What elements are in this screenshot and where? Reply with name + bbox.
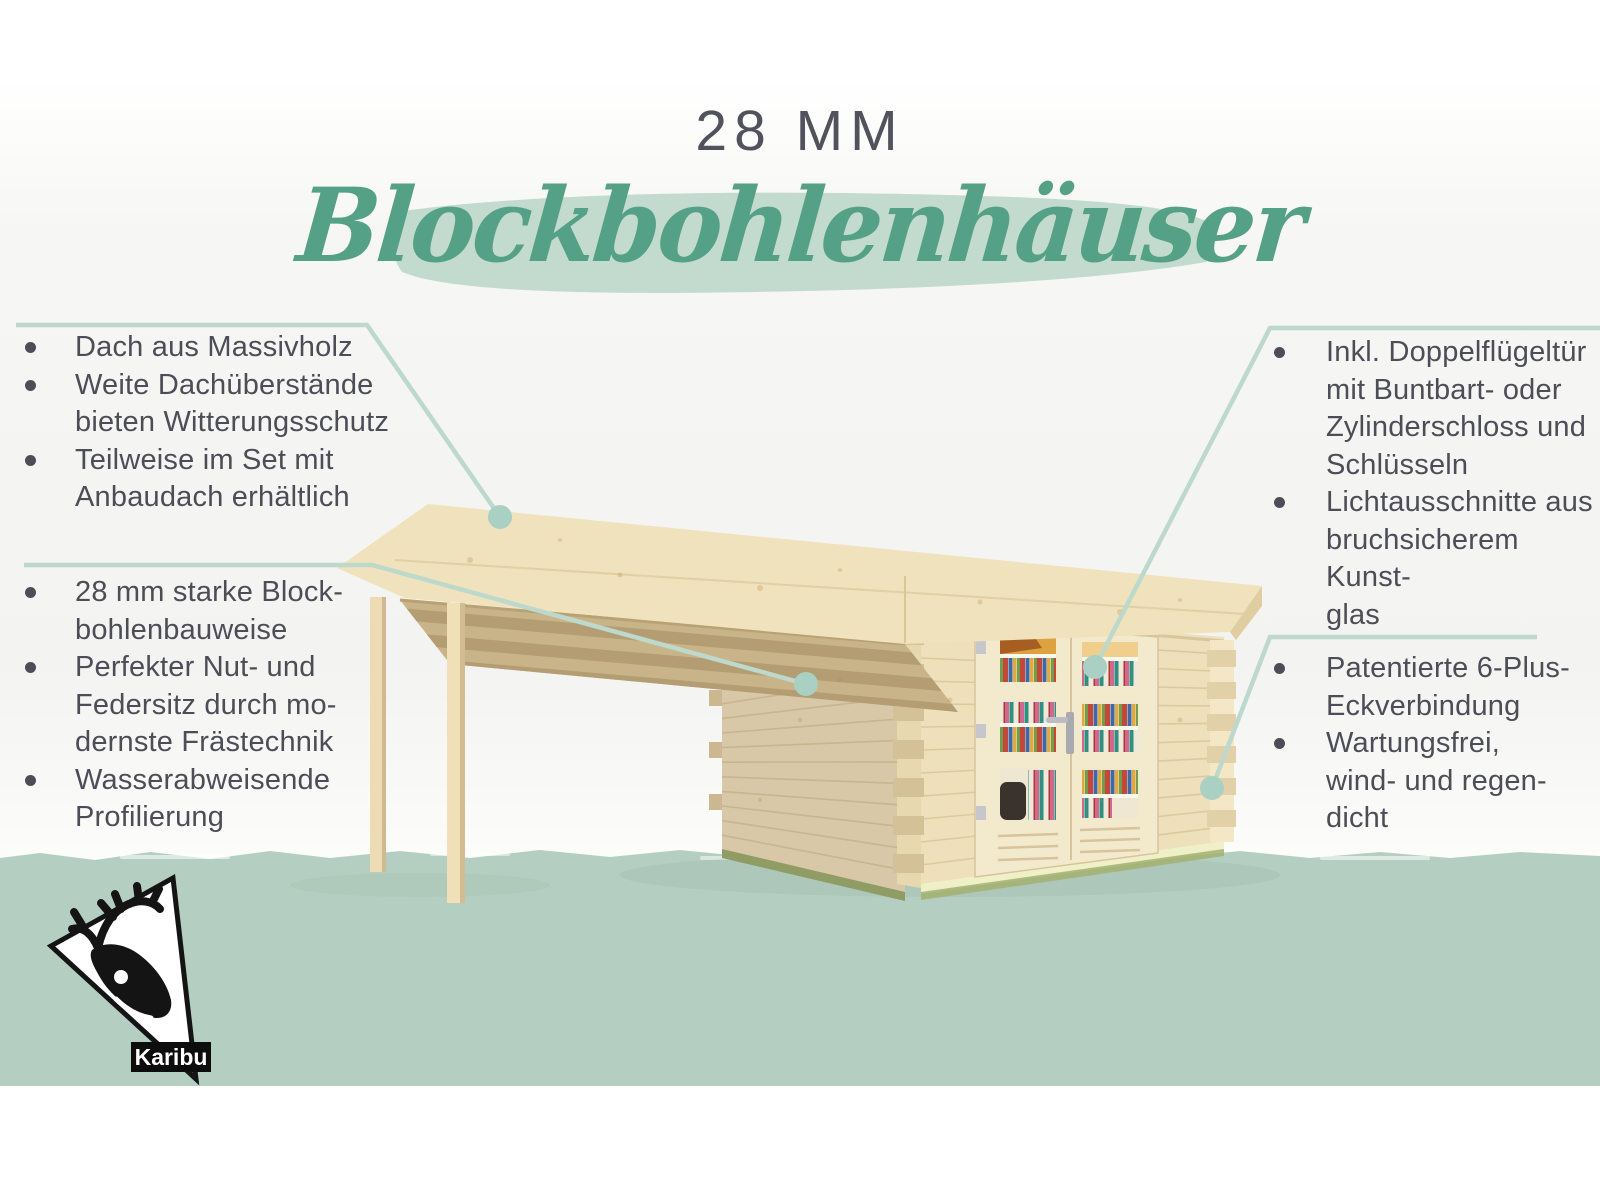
double-door bbox=[975, 622, 1158, 877]
callout-top-right: Inkl. Doppelflügeltür mit Buntbart- oder… bbox=[1258, 334, 1600, 634]
bullet-icon bbox=[25, 380, 36, 391]
dot-side-wall bbox=[794, 672, 818, 696]
callout-line: Zylinderschloss und bbox=[1326, 409, 1600, 447]
bullet-icon bbox=[25, 775, 36, 786]
callout-line: bieten Witterungsschutz bbox=[75, 404, 396, 442]
callout-item: Weite Dachüberstände bieten Witterungssc… bbox=[16, 367, 396, 442]
callout-line: glas bbox=[1326, 597, 1600, 635]
callout-item: Dach aus Massivholz bbox=[16, 329, 396, 367]
callout-line: bohlenbauweise bbox=[75, 612, 396, 650]
callout-bottom-right: Patentierte 6-Plus- Eckverbindung Wartun… bbox=[1258, 650, 1600, 838]
callout-line: Patentierte 6-Plus- bbox=[1326, 650, 1600, 688]
callout-line: 28 mm starke Block- bbox=[75, 574, 396, 612]
bullet-icon bbox=[25, 587, 36, 598]
callout-line: wind- und regen- bbox=[1326, 763, 1600, 801]
bullet-icon bbox=[1274, 497, 1285, 508]
callout-item: Lichtausschnitte aus bruchsicherem Kunst… bbox=[1258, 484, 1600, 634]
callout-line: Wartungsfrei, bbox=[1326, 725, 1600, 763]
callout-line: Inkl. Doppelflügeltür bbox=[1326, 334, 1600, 372]
callout-line: dernste Frästechnik bbox=[75, 724, 396, 762]
callout-item: Patentierte 6-Plus- Eckverbindung bbox=[1258, 650, 1600, 725]
callout-line: bruchsicherem Kunst- bbox=[1326, 522, 1600, 597]
page-title: Blockbohlenhäuser bbox=[35, 166, 1565, 286]
callout-line: Eckverbindung bbox=[1326, 688, 1600, 726]
callout-line: mit Buntbart- oder bbox=[1326, 372, 1600, 410]
callout-line: Teilweise im Set mit bbox=[75, 442, 396, 480]
page-title-kicker: 28 MM bbox=[0, 98, 1600, 164]
callout-item: 28 mm starke Block- bohlenbauweise bbox=[16, 574, 396, 649]
callout-line: Profilierung bbox=[75, 799, 396, 837]
infographic-page: Karibu 28 MM Blockbohlenhäuser Dach aus … bbox=[0, 0, 1600, 1200]
callout-line: Wasserabweisende bbox=[75, 762, 396, 800]
bullet-icon bbox=[1274, 347, 1285, 358]
callout-top-left: Dach aus Massivholz Weite Dachüberstände… bbox=[16, 329, 396, 517]
callout-item: Wartungsfrei, wind- und regen- dicht bbox=[1258, 725, 1600, 838]
callout-item: Wasserabweisende Profilierung bbox=[16, 762, 396, 837]
callout-line: Dach aus Massivholz bbox=[75, 329, 396, 367]
bullet-icon bbox=[25, 342, 36, 353]
bullet-icon bbox=[25, 455, 36, 466]
dot-corner-joint bbox=[1200, 776, 1224, 800]
callout-mid-left: 28 mm starke Block- bohlenbauweise Perfe… bbox=[16, 574, 396, 837]
dot-door-glass bbox=[1083, 655, 1107, 679]
bullet-icon bbox=[1274, 738, 1285, 749]
callout-item: Teilweise im Set mit Anbaudach erhältlic… bbox=[16, 442, 396, 517]
callout-line: Anbaudach erhältlich bbox=[75, 479, 396, 517]
callout-line: Weite Dachüberstände bbox=[75, 367, 396, 405]
logo-label: Karibu bbox=[135, 1044, 208, 1070]
callout-line: Perfekter Nut- und bbox=[75, 649, 396, 687]
callout-line: dicht bbox=[1326, 800, 1600, 838]
bullet-icon bbox=[1274, 663, 1285, 674]
callout-item: Inkl. Doppelflügeltür mit Buntbart- oder… bbox=[1258, 334, 1600, 484]
callout-line: Lichtausschnitte aus bbox=[1326, 484, 1600, 522]
bullet-icon bbox=[25, 662, 36, 673]
callout-line: Federsitz durch mo- bbox=[75, 687, 396, 725]
callout-line: Schlüsseln bbox=[1326, 447, 1600, 485]
dot-roof bbox=[488, 505, 512, 529]
callout-item: Perfekter Nut- und Federsitz durch mo- d… bbox=[16, 649, 396, 762]
